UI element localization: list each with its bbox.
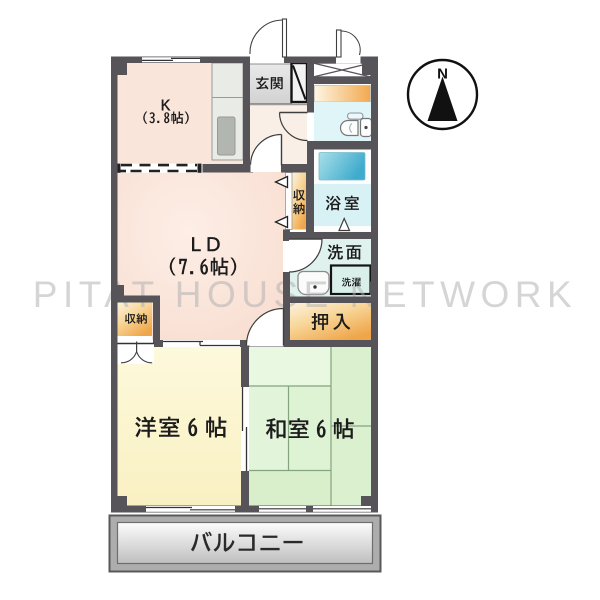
svg-text:N: N (437, 66, 448, 83)
